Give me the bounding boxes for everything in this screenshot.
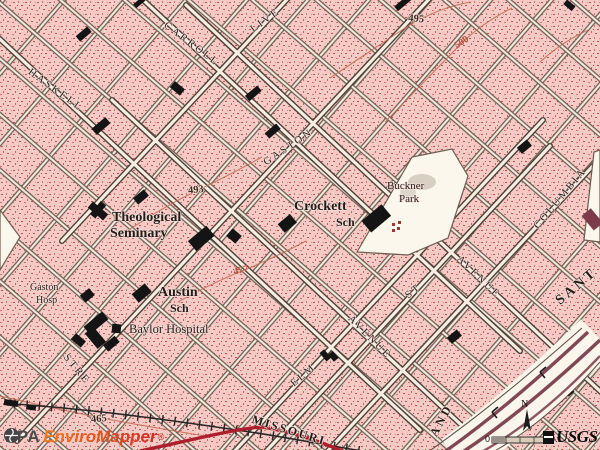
scale-bar	[492, 437, 548, 443]
usgs-logo: USGS	[543, 427, 597, 447]
place-label-crockett-sch-2: Sch	[336, 216, 355, 228]
north-label: N	[521, 400, 528, 410]
place-label-gaston-hosp-2: Hosp	[36, 296, 57, 306]
usgs-wordmark: USGS	[556, 427, 597, 447]
place-label-theological-seminary-2: Seminary	[110, 227, 168, 241]
envirmapper-map-viewport[interactable]: LIVE CARROLL HASKELL GASTON ELM ST STRE …	[0, 0, 600, 450]
place-label-buckner-park-2: Park	[399, 194, 419, 205]
place-label-austin-sch-2: Sch	[170, 302, 189, 314]
place-label-gaston-hosp: Gaston	[30, 283, 58, 293]
elevation-label-493: 493	[188, 185, 205, 197]
epa-envirmapper-logo: EPA EnviroMapper ®	[3, 427, 164, 447]
elevation-label-465: 465	[91, 414, 108, 426]
epa-seal-icon	[3, 427, 20, 444]
place-label-baylor-hospital: Baylor Hospital	[129, 323, 209, 336]
place-label-theological-seminary: Theological	[112, 211, 181, 225]
place-label-buckner-park: Buckner	[387, 181, 424, 192]
scale-left-label: 0	[485, 435, 490, 444]
registered-trademark: ®	[158, 432, 165, 442]
place-label-austin-sch: Austin	[158, 286, 198, 300]
elevation-label-495: 495	[408, 14, 425, 26]
building	[112, 324, 122, 334]
place-label-crockett-sch: Crockett	[294, 200, 347, 214]
usgs-glyph-icon	[543, 431, 554, 444]
envirmapper-wordmark: EnviroMapper	[43, 427, 156, 447]
